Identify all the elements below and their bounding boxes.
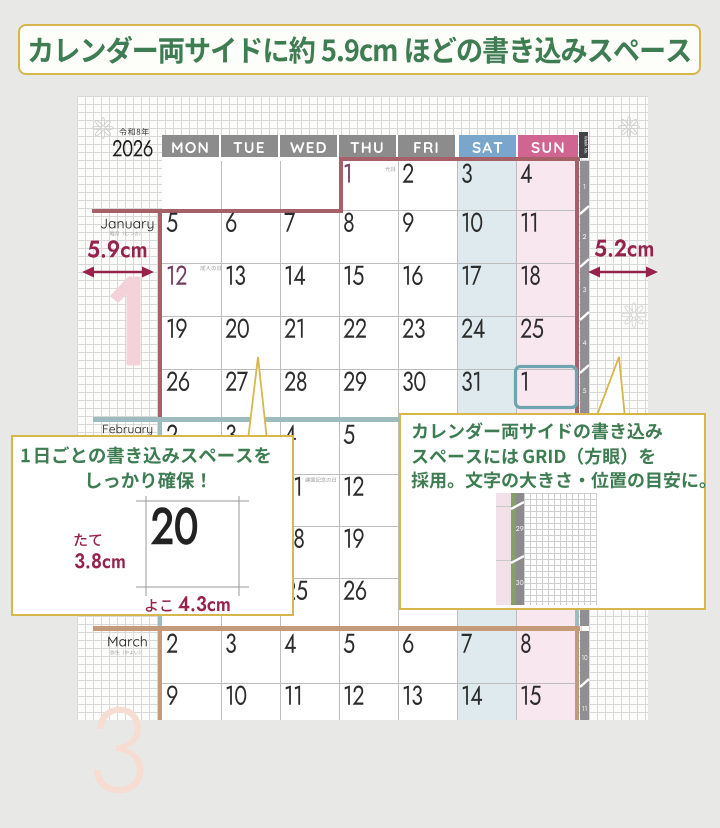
svg-text:Week No.: Week No. <box>584 136 589 154</box>
